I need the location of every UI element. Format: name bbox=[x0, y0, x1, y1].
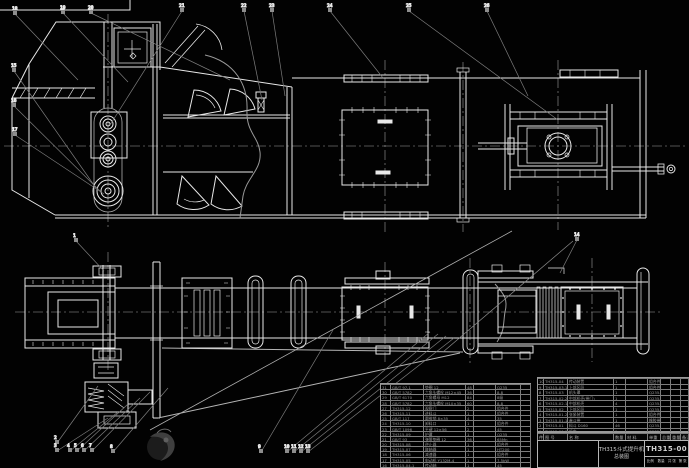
callout-number: 20 bbox=[88, 5, 94, 11]
callout-number: 1 bbox=[73, 233, 76, 239]
signature-cell: 处数 bbox=[538, 463, 551, 468]
callout-number: 8 bbox=[110, 444, 113, 450]
callout-number: 6 bbox=[81, 443, 84, 449]
tension-screw bbox=[478, 138, 675, 174]
leader-line bbox=[84, 398, 140, 451]
top-view bbox=[4, 14, 686, 235]
bom-table-right: 10TH315-04传动装置1组合件9TH315-03.1上部区段1组合件8TH… bbox=[537, 377, 689, 432]
casing-tube-plan bbox=[115, 271, 637, 354]
signature-cell bbox=[575, 463, 587, 468]
leader-line bbox=[14, 106, 100, 191]
callout-number: 12 bbox=[298, 444, 304, 450]
takeup-section bbox=[478, 70, 675, 218]
drawing-title-line2: 总装图 bbox=[614, 454, 629, 461]
bom-cell bbox=[474, 462, 496, 467]
bom-cell: 45 bbox=[496, 462, 521, 467]
title-sub-cell: 比例 bbox=[645, 457, 656, 467]
drawing-number-area: TH315-00 比例数量共 张第 张 bbox=[645, 441, 688, 467]
callout-number: 22 bbox=[241, 3, 247, 9]
signature-grid: 标记设计制图审核处数 bbox=[538, 441, 599, 467]
middle-casing bbox=[292, 68, 640, 222]
bom-cell: TH315-04.1 bbox=[391, 462, 424, 467]
watermark-logo-icon bbox=[147, 429, 175, 461]
signature-cell bbox=[563, 463, 575, 468]
callout-number: 17 bbox=[12, 127, 18, 133]
title-sub-cell: 数量 bbox=[656, 457, 667, 467]
callout-number: 15 bbox=[11, 63, 17, 69]
leader-line bbox=[14, 71, 96, 188]
callout-number: 3 bbox=[54, 443, 57, 449]
callout-number: 4 bbox=[67, 443, 70, 449]
head-plan bbox=[25, 265, 121, 360]
bom-cell: 传动轴 bbox=[424, 462, 466, 467]
hatch-ticks bbox=[20, 88, 86, 98]
leader-line bbox=[330, 11, 383, 78]
bom-table-right-header: 件图 号名 称数量材 料单重总重重量备注 bbox=[537, 432, 689, 440]
drawing-title-line1: TH315斗式提升机 bbox=[599, 447, 645, 454]
callout-number: 21 bbox=[179, 3, 185, 9]
callout-number: 16 bbox=[11, 98, 17, 104]
bom-cell bbox=[521, 462, 531, 467]
callout-number: 11 bbox=[291, 444, 297, 450]
signature-cell bbox=[587, 463, 599, 468]
leader-line bbox=[244, 11, 262, 100]
callout-number: 25 bbox=[406, 3, 412, 9]
bom-cell: 1 bbox=[466, 462, 474, 467]
callout-number: 14 bbox=[574, 232, 580, 238]
callout-number: 7 bbox=[89, 443, 92, 449]
leader-line bbox=[15, 14, 78, 80]
title-sub-cell: 第 张 bbox=[677, 457, 688, 467]
callout-number: 23 bbox=[269, 3, 275, 9]
callout-number: 5 bbox=[74, 443, 77, 449]
spring-coil bbox=[88, 388, 104, 409]
signature-cell bbox=[551, 463, 563, 468]
bucket bbox=[211, 176, 242, 210]
drawing-number: TH315-00 bbox=[645, 441, 688, 456]
title-block: 标记设计制图审核处数 TH315斗式提升机 总装图 TH315-00 比例数量共… bbox=[537, 440, 689, 468]
drawing-number-sub: 比例数量共 张第 张 bbox=[645, 456, 688, 467]
bom-cell: 16 bbox=[381, 462, 391, 467]
callout-number: 19 bbox=[60, 5, 66, 11]
leader-line bbox=[272, 11, 285, 96]
callout-number: 24 bbox=[327, 3, 333, 9]
bom-table-left: 31GB/T 97.1垫圈 1248Q23530GB/T 5782六角头螺栓 M… bbox=[380, 383, 531, 468]
leader-line bbox=[409, 11, 558, 120]
cad-drawing-canvas: 1819202122232425261516171234567891011121… bbox=[0, 0, 689, 468]
leader-line bbox=[76, 241, 104, 271]
leader-line bbox=[92, 392, 150, 451]
leader-line bbox=[57, 386, 98, 443]
bucket-belt-section bbox=[160, 24, 292, 218]
callout-number: 13 bbox=[305, 444, 311, 450]
drawing-title: TH315斗式提升机 总装图 bbox=[599, 441, 645, 467]
callout-number: 26 bbox=[484, 3, 490, 9]
sprocket-icon bbox=[93, 116, 123, 206]
drive-chain bbox=[91, 22, 127, 212]
callout-number: 2 bbox=[54, 435, 57, 441]
callout-number: 10 bbox=[284, 444, 290, 450]
callout-number: 18 bbox=[12, 6, 18, 12]
bucket bbox=[188, 90, 221, 117]
title-sub-cell: 共 张 bbox=[667, 457, 678, 467]
callout-number: 9 bbox=[258, 444, 261, 450]
bucket bbox=[224, 89, 255, 115]
bucket bbox=[177, 176, 209, 210]
